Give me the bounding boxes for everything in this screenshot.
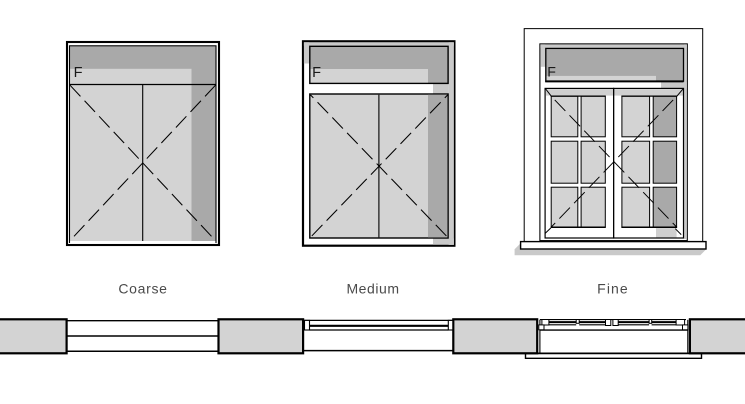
svg-text:Fine: Fine <box>597 281 629 297</box>
svg-text:Medium: Medium <box>346 281 399 297</box>
svg-text:F: F <box>74 65 83 81</box>
svg-text:Coarse: Coarse <box>118 281 167 297</box>
svg-text:F: F <box>547 65 556 81</box>
svg-text:F: F <box>312 65 321 81</box>
